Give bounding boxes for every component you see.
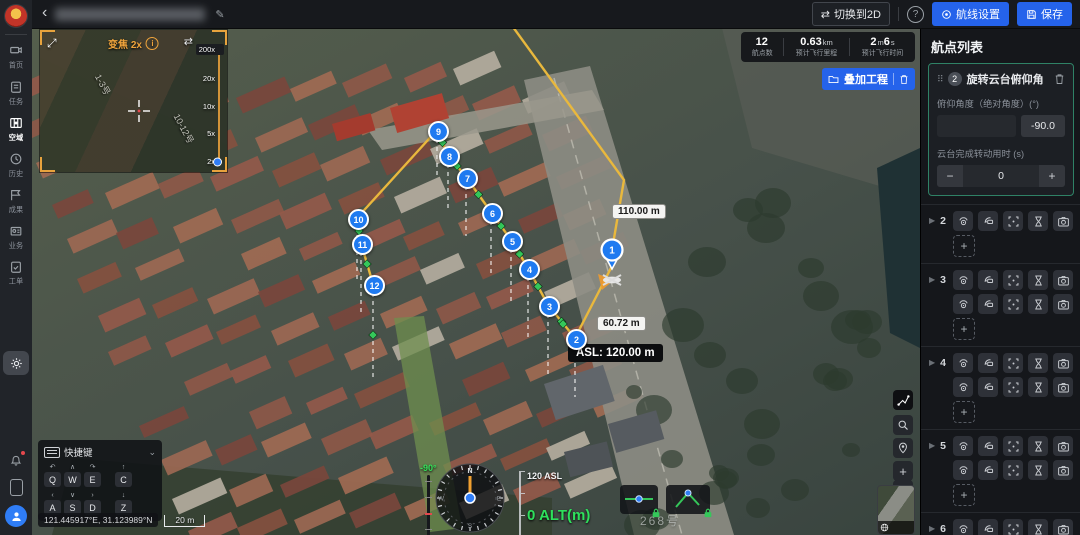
waypoint-row-header: ▶4+ — [929, 353, 1073, 423]
svg-text:1: 1 — [609, 246, 615, 257]
rotation-time-label: 云台完成转动用时 (s) — [937, 146, 1061, 160]
stat-item: 0.63km预计飞行里程 — [784, 36, 849, 57]
zoom-mark-5x[interactable]: 5x — [207, 129, 224, 138]
action-icons-row — [953, 377, 1073, 397]
hover-action-button[interactable] — [1028, 294, 1048, 314]
action-icons-row — [953, 519, 1073, 535]
waypoint-marker-7[interactable]: 7 — [457, 168, 478, 189]
sidebar-item-label: 首页 — [9, 61, 23, 71]
minimap-swap-icon[interactable]: ⇄ — [184, 35, 193, 48]
gimbal-pitch-action-icon — [957, 381, 970, 394]
notifications-button[interactable] — [9, 453, 23, 470]
help-button[interactable]: ? — [907, 6, 924, 23]
stat-item: 12航点数 — [741, 36, 784, 57]
rotation-time-value: 0 — [963, 165, 1039, 187]
photo-action-icon — [1057, 274, 1070, 287]
crosshair-icon — [128, 100, 150, 122]
gimbal-pitch-action-button[interactable] — [953, 460, 973, 480]
shortcuts-panel: 快捷键 ⌄ ↶Q∧W↷E↑C‹A∨S›D↓Z — [38, 440, 162, 521]
waypoint-marker-9[interactable]: 9 — [428, 121, 449, 142]
button-divider — [893, 73, 894, 85]
zoom-mark-2x[interactable]: 2x — [207, 157, 224, 166]
keycell: ∨S — [64, 492, 81, 515]
stat-label: 预计飞行时间 — [862, 49, 903, 57]
sidebar-divider — [5, 34, 27, 35]
app-window: 首页任务空域历史成果业务工单 ‹ ✎ ⇄ 切换到2D ? — [0, 0, 1080, 535]
focus-action-button[interactable] — [1003, 270, 1023, 290]
save-icon — [1026, 9, 1037, 20]
waypoint-row-header: ▶6+ — [929, 519, 1073, 535]
stat-value: 0.63km — [800, 36, 832, 49]
stat-label: 预计飞行里程 — [796, 49, 837, 57]
key-glyph: › — [91, 492, 93, 499]
aircraft-yaw-action-button[interactable] — [978, 460, 998, 480]
waypoint-marker-6[interactable]: 6 — [482, 203, 503, 224]
action-icons-row — [953, 270, 1073, 290]
stat-item: 2m6s预计飞行时间 — [850, 36, 915, 57]
aircraft-yaw-action-icon — [982, 274, 995, 287]
minimap-ground-label: 1-3号 — [92, 72, 114, 98]
flight-stats-bar: 12航点数0.63km预计飞行里程2m6s预计飞行时间 — [741, 32, 916, 62]
hover-action-button[interactable] — [1028, 270, 1048, 290]
minimap-expand-icon[interactable]: ⤢ — [47, 36, 57, 51]
photo-action-button[interactable] — [1053, 519, 1073, 535]
route-settings-button[interactable]: 航线设置 — [932, 2, 1009, 26]
bell-icon — [9, 453, 23, 467]
basemap-layer-switcher[interactable] — [877, 485, 915, 535]
keycell: ↑C — [115, 464, 132, 487]
sidebar-bottom — [5, 453, 27, 535]
aircraft-yaw-action-button[interactable] — [978, 294, 998, 314]
focus-action-icon — [1007, 298, 1020, 311]
altitude-scale-line — [519, 471, 521, 535]
keyboard-icon — [44, 447, 60, 458]
waypoint-marker-3[interactable]: 3 — [539, 296, 560, 317]
speed-control-panel[interactable] — [620, 485, 658, 514]
photo-action-icon — [1057, 381, 1070, 394]
hover-action-icon — [1032, 440, 1045, 453]
gear-icon — [10, 357, 23, 370]
airspace-icon — [9, 116, 23, 130]
shortcuts-header: 快捷键 ⌄ — [44, 445, 156, 459]
svg-text:N: N — [467, 468, 472, 475]
waypoint-row-4: ▶4+ — [921, 346, 1080, 429]
gimbal-pitch-action-icon — [957, 357, 970, 370]
app-logo — [5, 5, 27, 27]
business-icon — [9, 224, 23, 238]
delete-action-icon[interactable] — [1054, 73, 1065, 85]
gimbal-pitch-action-button[interactable] — [953, 377, 973, 397]
focus-action-icon — [1007, 464, 1020, 477]
sidebar-nav: 首页任务空域历史成果业务工单 — [0, 39, 32, 291]
focus-action-button[interactable] — [1003, 353, 1023, 373]
aircraft-yaw-action-icon — [982, 215, 995, 228]
focus-action-icon — [1007, 381, 1020, 394]
expand-caret-icon[interactable]: ▶ — [929, 353, 940, 367]
minimap-corner — [212, 30, 227, 45]
route-settings-label: 航线设置 — [956, 6, 1000, 22]
aircraft-yaw-action-icon — [982, 523, 995, 535]
gimbal-pitch-action-button[interactable] — [953, 436, 973, 456]
waypoint-list-panel: 航点列表 ⠿ 2 旋转云台俯仰角 俯仰角度（绝对角度）(°) -90.0 云台完… — [920, 28, 1080, 535]
keycell: ›D — [84, 492, 101, 515]
lock-icon — [703, 508, 713, 518]
segment-distance-label: 110.00 m — [612, 204, 666, 219]
action-icons-row — [953, 436, 1073, 456]
key-glyph: ‹ — [51, 492, 53, 499]
zoom-factor-text: 变焦 2x — [108, 36, 142, 51]
map-scale-bar: 20 m — [164, 515, 205, 527]
sidebar-item-label: 业务 — [9, 241, 23, 251]
aircraft-yaw-action-icon — [982, 464, 995, 477]
keycell: ↶Q — [44, 464, 61, 487]
photo-action-button[interactable] — [1053, 460, 1073, 480]
waypoint-number: 5 — [940, 436, 953, 452]
key-glyph: ∨ — [70, 492, 75, 499]
user-icon — [10, 510, 23, 523]
sidebar-item-首页[interactable]: 首页 — [0, 39, 32, 75]
hover-action-icon — [1032, 381, 1045, 394]
focus-action-icon — [1007, 357, 1020, 370]
rotation-time-stepper: − 0 + — [937, 165, 1065, 187]
action-name: 旋转云台俯仰角 — [967, 71, 1049, 87]
keys-row: ↶Q∧W↷E↑C — [44, 464, 156, 487]
heading-control-panel[interactable] — [666, 485, 710, 514]
gimbal-action-card: ⠿ 2 旋转云台俯仰角 俯仰角度（绝对角度）(°) -90.0 云台完成转动用时… — [928, 63, 1074, 196]
waypoint-marker-8[interactable]: 8 — [439, 146, 460, 167]
aircraft-yaw-action-button[interactable] — [978, 211, 998, 231]
sidebar-item-工单[interactable]: 工单 — [0, 255, 32, 291]
keycell: ↷E — [84, 464, 101, 487]
project-title-redacted — [55, 8, 205, 21]
minimap-zoom-label: 变焦 2x i — [108, 36, 159, 51]
folder-icon — [828, 74, 839, 85]
focus-action-button[interactable] — [1003, 460, 1023, 480]
minimap-zoom-scale[interactable]: 200x20x10x5x2x — [196, 44, 224, 166]
photo-action-icon — [1057, 440, 1070, 453]
gimbal-pitch-value: -90° — [420, 463, 437, 473]
hover-action-icon — [1032, 298, 1045, 311]
switch-2d-label: 切换到2D — [834, 6, 881, 22]
pitch-angle-label: 俯仰角度（绝对角度）(°) — [937, 96, 1061, 110]
pitch-track — [427, 475, 430, 535]
camera-icon — [9, 44, 23, 58]
gimbal-pitch-action-button[interactable] — [953, 294, 973, 314]
key-glyph: ↶ — [50, 464, 56, 471]
segment-distance-label: 60.72 m — [597, 316, 646, 331]
keys-gap — [104, 464, 112, 487]
stat-value: 12 — [756, 36, 768, 49]
waypoint-rows: ▶2+▶3+▶4+▶5+▶6+▶7+ — [921, 204, 1080, 535]
focus-action-button[interactable] — [1003, 519, 1023, 535]
shortcut-keys: ↶Q∧W↷E↑C‹A∨S›D↓Z — [44, 464, 156, 515]
key-E[interactable]: E — [84, 472, 101, 487]
topbar-actions: ⇄ 切换到2D ? 航线设置 保存 — [812, 2, 1080, 26]
aircraft-yaw-action-button[interactable] — [978, 377, 998, 397]
search-map-button[interactable] — [893, 415, 913, 435]
sidebar-item-成果[interactable]: 成果 — [0, 183, 32, 219]
key-Q[interactable]: Q — [44, 472, 61, 487]
pitch-angle-slider[interactable] — [937, 115, 1016, 137]
top-bar: ‹ ✎ ⇄ 切换到2D ? 航线设置 保存 — [32, 0, 1080, 29]
waypoint-number: 4 — [940, 353, 953, 369]
edit-title-button[interactable]: ✎ — [215, 8, 224, 21]
search-icon — [897, 419, 909, 431]
keys-row: ‹A∨S›D↓Z — [44, 492, 156, 515]
workorder-icon — [9, 260, 23, 274]
aircraft-yaw-action-button[interactable] — [978, 353, 998, 373]
keycell: ↓Z — [115, 492, 132, 515]
action-icons-row — [953, 294, 1073, 314]
switch-2d-button[interactable]: ⇄ 切换到2D — [812, 2, 890, 26]
swap-icon: ⇄ — [821, 8, 830, 21]
alt-current-label: 0 ALT(m) — [527, 507, 590, 524]
aircraft-yaw-action-button[interactable] — [978, 519, 998, 535]
camera-minimap[interactable]: ⤢ 变焦 2x i ⇄ 200x20x10x5x2x 1-3号 10-12号 — [40, 30, 227, 172]
sidebar-item-label: 成果 — [9, 205, 23, 215]
hover-action-button[interactable] — [1028, 353, 1048, 373]
hover-action-button[interactable] — [1028, 211, 1048, 231]
pitch-angle-row: -90.0 — [937, 115, 1065, 137]
shortcuts-title: 快捷键 — [64, 445, 93, 459]
info-icon[interactable]: i — [146, 37, 159, 50]
add-action-button[interactable]: + — [953, 318, 975, 340]
results-icon — [9, 188, 23, 202]
layer-caption — [878, 521, 914, 534]
panel-title: 航点列表 — [921, 28, 1080, 63]
hover-action-icon — [1032, 464, 1045, 477]
sidebar-item-空域[interactable]: 空域 — [0, 111, 32, 147]
focus-action-button[interactable] — [1003, 211, 1023, 231]
coords-scale-row: 121.445917°E, 31.123989°N 20 m — [38, 513, 205, 527]
alt-ceiling-label: 120 ASL — [527, 471, 590, 481]
gimbal-pitch-action-icon — [957, 523, 970, 535]
waypoint-marker-12[interactable]: 12 — [364, 275, 385, 296]
key-C[interactable]: C — [115, 472, 132, 487]
key-glyph: ∧ — [70, 464, 75, 471]
aircraft-yaw-action-icon — [982, 440, 995, 453]
aircraft-yaw-action-icon — [982, 381, 995, 394]
aircraft-yaw-action-button[interactable] — [978, 436, 998, 456]
focus-action-button[interactable] — [1003, 377, 1023, 397]
focus-action-icon — [1007, 523, 1020, 535]
aircraft-yaw-action-icon — [982, 298, 995, 311]
photo-action-icon — [1057, 357, 1070, 370]
svg-text:W: W — [438, 496, 445, 503]
expand-caret-icon[interactable]: ▶ — [929, 270, 940, 284]
photo-action-button[interactable] — [1053, 436, 1073, 456]
topbar-separator — [898, 7, 899, 21]
photo-action-icon — [1057, 464, 1070, 477]
hover-action-icon — [1032, 357, 1045, 370]
tasks-icon — [9, 80, 23, 94]
sidebar-item-业务[interactable]: 业务 — [0, 219, 32, 255]
waypoint-marker-2[interactable]: 2 — [566, 329, 587, 350]
waypoint-marker-11[interactable]: 11 — [352, 234, 373, 255]
hover-action-button[interactable] — [1028, 377, 1048, 397]
sidebar-item-label: 工单 — [9, 277, 23, 287]
keycell: ∧W — [64, 464, 81, 487]
location-pin-icon — [897, 442, 909, 454]
minimap-corner — [40, 157, 55, 172]
trash-icon[interactable] — [899, 74, 909, 85]
minimap-ground-label: 10-12号 — [171, 111, 198, 145]
add-action-button[interactable]: + — [953, 401, 975, 423]
globe-icon — [880, 523, 889, 532]
route-tool-button[interactable] — [893, 390, 913, 410]
focus-action-icon — [1007, 215, 1020, 228]
hover-action-icon — [1032, 215, 1045, 228]
action-index-badge: 2 — [948, 72, 962, 86]
drag-handle-icon[interactable]: ⠿ — [937, 75, 943, 83]
expand-caret-icon[interactable]: ▶ — [929, 436, 940, 450]
history-icon — [9, 152, 23, 166]
keycell: ‹A — [44, 492, 61, 515]
waypoint-row-2: ▶2+ — [921, 204, 1080, 263]
locate-button[interactable] — [893, 438, 913, 458]
lock-icon — [651, 508, 661, 518]
key-glyph: ↷ — [90, 464, 96, 471]
aircraft-yaw-action-button[interactable] — [978, 270, 998, 290]
stat-value: 2m6s — [870, 36, 894, 49]
action-icons-row — [953, 353, 1073, 373]
hover-action-icon — [1032, 523, 1045, 535]
device-button[interactable] — [10, 479, 23, 496]
photo-action-button[interactable] — [1053, 353, 1073, 373]
waypoint-number: 3 — [940, 270, 953, 286]
gimbal-pitch-action-button[interactable] — [953, 519, 973, 535]
sidebar-item-label: 历史 — [9, 169, 23, 179]
photo-action-button[interactable] — [1053, 211, 1073, 231]
route-path-icon — [897, 394, 910, 407]
overlay-project-label: 叠加工程 — [844, 71, 888, 87]
waypoint-row-header: ▶3+ — [929, 270, 1073, 340]
key-glyph: ↑ — [122, 464, 126, 471]
waypoint-row-header: ▶5+ — [929, 436, 1073, 506]
photo-action-button[interactable] — [1053, 294, 1073, 314]
hover-action-button[interactable] — [1028, 460, 1048, 480]
focus-action-icon — [1007, 274, 1020, 287]
focus-action-button[interactable] — [1003, 436, 1023, 456]
zoom-in-button[interactable]: + — [893, 461, 913, 481]
add-action-button[interactable]: + — [953, 235, 975, 257]
gimbal-pitch-action-button[interactable] — [953, 353, 973, 373]
waypoint-row-header: ▶2+ — [929, 211, 1073, 257]
expand-caret-icon[interactable]: ▶ — [929, 519, 940, 533]
card-header: ⠿ 2 旋转云台俯仰角 — [937, 71, 1065, 87]
svg-text:E: E — [497, 496, 502, 503]
focus-action-button[interactable] — [1003, 294, 1023, 314]
hover-action-button[interactable] — [1028, 519, 1048, 535]
user-avatar[interactable] — [5, 505, 27, 527]
map-canvas[interactable]: 1 ⤢ 变焦 2x i ⇄ 200x20x10x5x2x 1-3号 10-12号 — [32, 28, 920, 535]
stepper-plus-button[interactable]: + — [1039, 165, 1065, 187]
zoom-mark-200x[interactable]: 200x — [196, 44, 224, 55]
gimbal-pitch-action-icon — [957, 215, 970, 228]
photo-action-icon — [1057, 298, 1070, 311]
waypoint-row-3: ▶3+ — [921, 263, 1080, 346]
photo-action-icon — [1057, 215, 1070, 228]
waypoint-row-5: ▶5+ — [921, 429, 1080, 512]
gimbal-pitch-action-button[interactable] — [953, 270, 973, 290]
waypoint-number: 6 — [940, 519, 953, 535]
focus-action-icon — [1007, 440, 1020, 453]
photo-action-button[interactable] — [1053, 270, 1073, 290]
add-action-button[interactable]: + — [953, 484, 975, 506]
key-W[interactable]: W — [64, 472, 81, 487]
sidebar-item-label: 任务 — [9, 97, 23, 107]
hover-action-button[interactable] — [1028, 436, 1048, 456]
action-icons-row — [953, 211, 1073, 231]
waypoint-marker-4[interactable]: 4 — [519, 259, 540, 280]
gimbal-pitch-gauge: -90° — [420, 463, 437, 535]
action-icons-row — [953, 460, 1073, 480]
photo-action-icon — [1057, 523, 1070, 535]
save-label: 保存 — [1041, 6, 1063, 22]
notification-dot — [21, 451, 25, 455]
save-button[interactable]: 保存 — [1017, 2, 1072, 26]
svg-text:S: S — [468, 523, 473, 530]
gimbal-pitch-action-icon — [957, 464, 970, 477]
settings-button[interactable] — [3, 351, 29, 375]
left-sidebar: 首页任务空域历史成果业务工单 — [0, 0, 32, 535]
photo-action-button[interactable] — [1053, 377, 1073, 397]
aircraft-yaw-action-icon — [982, 357, 995, 370]
altitude-indicator: 120 ASL 0 ALT(m) 114.7 ASL — [519, 471, 590, 535]
compass[interactable]: N S W E — [432, 460, 508, 535]
stat-label: 航点数 — [751, 49, 772, 57]
zoom-mark-10x[interactable]: 10x — [203, 102, 224, 111]
gimbal-pitch-action-icon — [957, 440, 970, 453]
waypoint-row-6: ▶6+ — [921, 512, 1080, 535]
waypoint-number: 2 — [940, 211, 953, 227]
expand-caret-icon[interactable]: ▶ — [929, 211, 940, 225]
key-glyph: ↓ — [122, 492, 126, 499]
route-settings-gear-icon — [941, 9, 952, 20]
sidebar-item-任务[interactable]: 任务 — [0, 75, 32, 111]
back-button[interactable]: ‹ — [32, 4, 55, 24]
gimbal-pitch-action-icon — [957, 298, 970, 311]
waypoint-marker-10[interactable]: 10 — [348, 209, 369, 230]
hover-action-icon — [1032, 274, 1045, 287]
stepper-minus-button[interactable]: − — [937, 165, 963, 187]
overlay-project-button[interactable]: 叠加工程 — [822, 68, 915, 90]
cursor-coordinates: 121.445917°E, 31.123989°N — [38, 513, 158, 527]
gimbal-pitch-action-button[interactable] — [953, 211, 973, 231]
keys-gap — [104, 492, 112, 515]
sidebar-item-历史[interactable]: 历史 — [0, 147, 32, 183]
sidebar-item-label: 空域 — [9, 133, 23, 143]
gimbal-pitch-action-icon — [957, 274, 970, 287]
waypoint-marker-5[interactable]: 5 — [502, 231, 523, 252]
pitch-angle-input[interactable]: -90.0 — [1021, 115, 1065, 137]
collapse-shortcuts-icon[interactable]: ⌄ — [148, 447, 156, 458]
zoom-mark-20x[interactable]: 20x — [203, 74, 224, 83]
